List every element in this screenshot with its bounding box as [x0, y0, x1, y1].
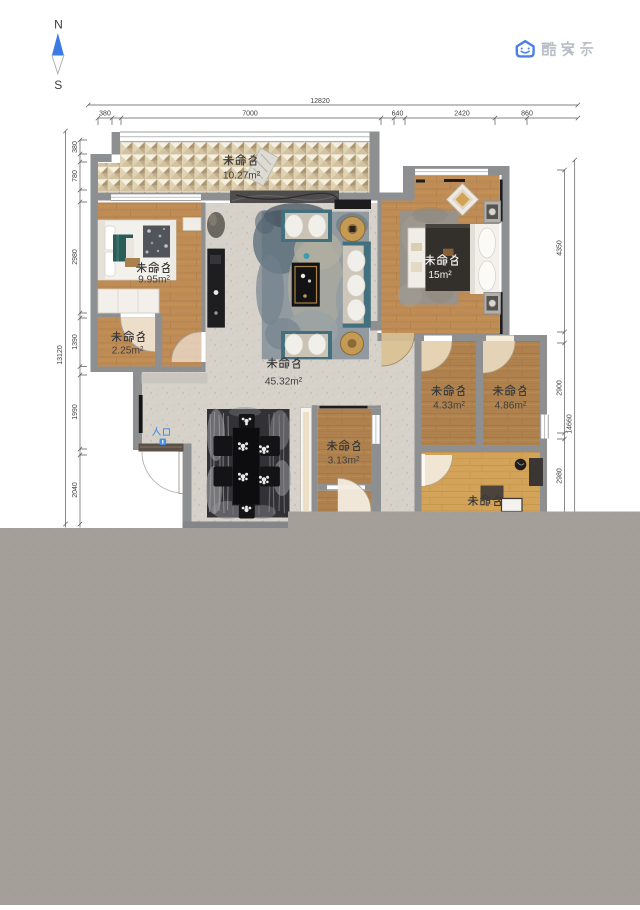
svg-text:780: 780: [72, 170, 79, 182]
svg-text:9.95m²: 9.95m²: [138, 275, 170, 286]
svg-text:4.86m²: 4.86m²: [495, 401, 527, 412]
svg-text:14660: 14660: [566, 414, 573, 434]
svg-text:4350: 4350: [557, 240, 564, 256]
svg-text:7000: 7000: [242, 111, 258, 118]
svg-text:15m²: 15m²: [428, 270, 452, 281]
svg-text:380: 380: [99, 111, 111, 118]
svg-text:N: N: [54, 18, 63, 32]
svg-text:2420: 2420: [454, 111, 470, 118]
svg-text:860: 860: [521, 111, 533, 118]
svg-text:2980: 2980: [72, 249, 79, 265]
svg-text:4.33m²: 4.33m²: [433, 401, 465, 412]
svg-text:2.25m²: 2.25m²: [112, 346, 144, 357]
svg-text:640: 640: [392, 111, 404, 118]
svg-text:S: S: [54, 78, 62, 92]
svg-text:3.13m²: 3.13m²: [328, 456, 360, 467]
svg-text:1990: 1990: [72, 404, 79, 420]
svg-text:2980: 2980: [557, 468, 564, 484]
svg-text:10.27m²: 10.27m²: [223, 171, 261, 182]
svg-text:380: 380: [72, 141, 79, 153]
svg-text:13120: 13120: [57, 345, 64, 365]
svg-text:12820: 12820: [310, 98, 330, 105]
svg-text:2040: 2040: [72, 482, 79, 498]
svg-text:45.32m²: 45.32m²: [265, 377, 303, 388]
svg-text:1390: 1390: [72, 334, 79, 350]
svg-text:2900: 2900: [557, 380, 564, 396]
